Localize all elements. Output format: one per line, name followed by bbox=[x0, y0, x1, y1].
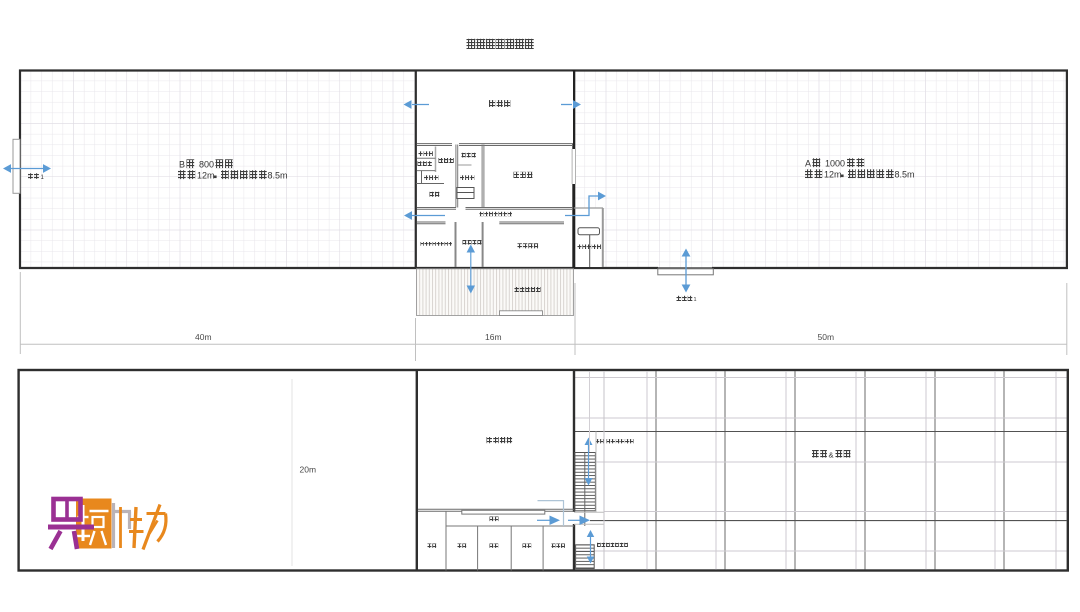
svg-text:12m: 12m bbox=[824, 169, 842, 179]
svg-text:A: A bbox=[805, 159, 811, 169]
svg-text:&: & bbox=[829, 450, 834, 459]
svg-text:800: 800 bbox=[199, 160, 214, 170]
svg-text:50m: 50m bbox=[818, 332, 835, 342]
svg-text:8.5m: 8.5m bbox=[895, 169, 915, 179]
svg-text:8.5m: 8.5m bbox=[268, 170, 288, 180]
svg-text:12m: 12m bbox=[197, 170, 215, 180]
svg-text:16m: 16m bbox=[485, 332, 502, 342]
svg-text:20m: 20m bbox=[300, 464, 317, 474]
svg-text:40m: 40m bbox=[195, 332, 212, 342]
svg-text:B: B bbox=[179, 160, 185, 170]
svg-text:1: 1 bbox=[694, 297, 697, 303]
svg-text:1000: 1000 bbox=[825, 159, 845, 169]
